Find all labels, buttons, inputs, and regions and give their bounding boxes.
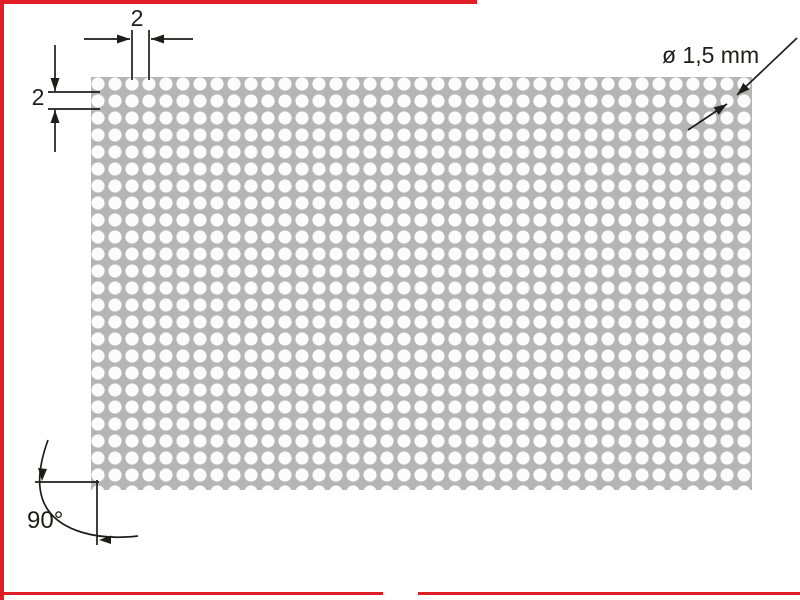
- page-frame-bottom-rule-left: [0, 592, 383, 595]
- angle-arc-arrow-bottom: [99, 536, 111, 545]
- pitch-horizontal-label: 2: [126, 7, 148, 30]
- angle-arc-arrow-top: [38, 468, 47, 481]
- diagram-canvas: 2 2 ø 1,5 mm 90°: [0, 0, 800, 600]
- pitch-vertical-label: 2: [27, 86, 49, 109]
- page-frame-left-bar: [0, 0, 4, 600]
- hole-diameter-label: ø 1,5 mm: [662, 44, 759, 67]
- page-frame-bottom-rule-right: [418, 592, 800, 595]
- page-frame-top-bar: [0, 0, 477, 4]
- perforated-sheet: [91, 77, 752, 490]
- corner-angle-label: 90°: [27, 509, 63, 533]
